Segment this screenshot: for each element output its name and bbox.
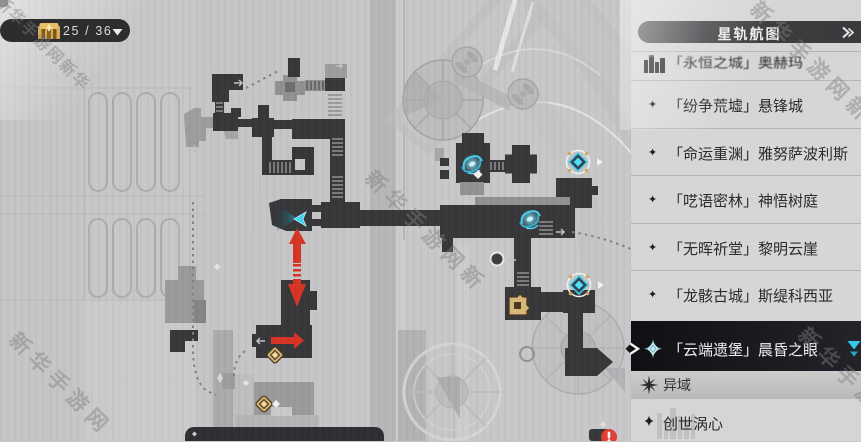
svg-text:25 / 36: 25 / 36 [63, 24, 112, 38]
